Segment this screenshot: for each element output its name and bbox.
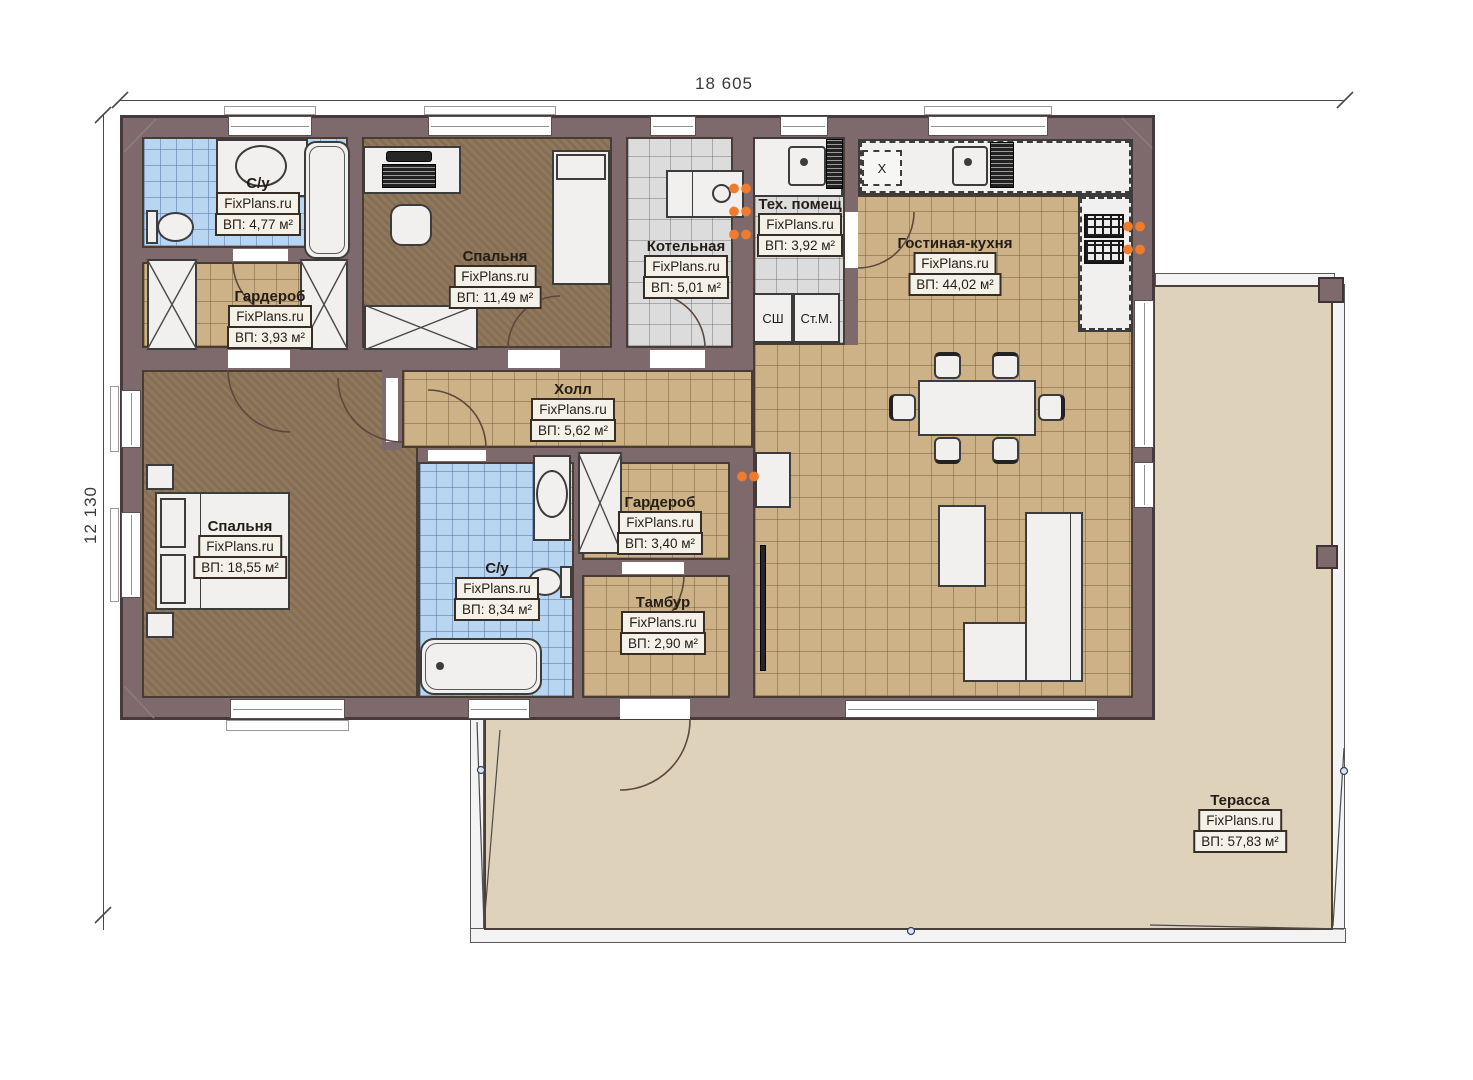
wardrobe-cabinet bbox=[364, 305, 478, 350]
dining-chair bbox=[992, 352, 1019, 379]
brand-box: FixPlans.ru bbox=[228, 305, 312, 328]
area-box: ВП: 5,01 м² bbox=[643, 276, 729, 299]
fridge-label: Х bbox=[878, 161, 887, 176]
window-left-bedroom2 bbox=[121, 512, 141, 598]
room-label-bedroom1: Спальня FixPlans.ru ВП: 11,49 м² bbox=[449, 248, 542, 309]
brand-box: FixPlans.ru bbox=[1198, 809, 1282, 832]
room-label-wardrobe1: Гардероб FixPlans.ru ВП: 3,93 м² bbox=[227, 288, 313, 349]
door-gap-hall-bath2 bbox=[428, 450, 486, 461]
terrace-floor-right bbox=[1155, 285, 1333, 722]
dining-chair bbox=[992, 437, 1019, 464]
room-label-bedroom2: Спальня FixPlans.ru ВП: 18,55 м² bbox=[193, 518, 287, 579]
boiler-divider bbox=[692, 170, 693, 218]
room-label-terrace: Терасса FixPlans.ru ВП: 57,83 м² bbox=[1193, 792, 1287, 853]
stove-burners-icon bbox=[1084, 240, 1124, 264]
door-gap-bath1-wardrobe1 bbox=[233, 249, 288, 261]
water-heater-icon bbox=[826, 139, 843, 189]
pillow bbox=[556, 154, 606, 180]
room-label-living: Гостиная-кухня FixPlans.ru ВП: 44,02 м² bbox=[898, 235, 1013, 296]
sink-icon bbox=[536, 470, 568, 518]
washer-box: Ст.М. bbox=[793, 293, 840, 343]
sink-icon bbox=[788, 146, 826, 186]
door-gap-hall-bedroom1 bbox=[508, 350, 560, 368]
room-label-hall: Холл FixPlans.ru ВП: 5,62 м² bbox=[530, 381, 616, 442]
window-right-dining bbox=[1134, 300, 1154, 448]
dimension-height-label: 12 130 bbox=[81, 486, 101, 544]
sofa-backrest-line bbox=[1070, 514, 1071, 680]
nightstand bbox=[146, 612, 174, 638]
window-bottom-bath2 bbox=[468, 699, 530, 719]
bathtub-inner bbox=[309, 146, 345, 254]
radiator-icon bbox=[728, 205, 752, 218]
stove-burners-icon bbox=[1084, 214, 1124, 238]
area-box: ВП: 3,93 м² bbox=[227, 326, 313, 349]
terrace-post-top-right bbox=[1318, 277, 1344, 303]
window-top-kitchen bbox=[928, 116, 1048, 136]
door-gap-wardrobe2-tambour bbox=[622, 562, 684, 574]
floor-plan-canvas: 18 605 12 130 bbox=[0, 0, 1473, 1080]
faucet-dot bbox=[800, 158, 808, 166]
terrace-railing-left bbox=[470, 718, 484, 930]
door-gap-hall-bedroom2 bbox=[386, 378, 398, 442]
dining-chair bbox=[934, 437, 961, 464]
printer-icon bbox=[382, 164, 436, 188]
dining-chair bbox=[1038, 394, 1065, 421]
wardrobe-cabinet bbox=[147, 259, 197, 350]
brand-box: FixPlans.ru bbox=[758, 213, 842, 236]
brand-box: FixPlans.ru bbox=[453, 265, 537, 288]
dryer-box: СШ bbox=[753, 293, 793, 343]
chair bbox=[390, 204, 432, 246]
area-box: ВП: 2,90 м² bbox=[620, 632, 706, 655]
dryer-label: СШ bbox=[762, 311, 783, 326]
room-label-tambour: Тамбур FixPlans.ru ВП: 2,90 м² bbox=[620, 594, 706, 655]
room-label-wardrobe2: Гардероб FixPlans.ru ВП: 3,40 м² bbox=[617, 494, 703, 555]
room-label-bath2: С/у FixPlans.ru ВП: 8,34 м² bbox=[454, 560, 540, 621]
radiator-icon bbox=[1122, 220, 1146, 233]
terrace-post-right-mid bbox=[1316, 545, 1338, 569]
nightstand bbox=[146, 464, 174, 490]
brand-box: FixPlans.ru bbox=[913, 252, 997, 275]
area-box: ВП: 5,62 м² bbox=[530, 419, 616, 442]
drain-dot bbox=[436, 662, 444, 670]
faucet-dot bbox=[964, 158, 972, 166]
door-gap-tech-living bbox=[845, 212, 858, 268]
area-box: ВП: 57,83 м² bbox=[1193, 830, 1287, 853]
tv-console bbox=[755, 452, 791, 508]
wardrobe-cabinet bbox=[578, 452, 622, 554]
dimension-line-top bbox=[120, 100, 1345, 101]
dining-chair bbox=[934, 352, 961, 379]
brand-box: FixPlans.ru bbox=[644, 255, 728, 278]
room-label-bath1: С/у FixPlans.ru ВП: 4,77 м² bbox=[215, 175, 301, 236]
door-gap-hall-boiler bbox=[650, 350, 705, 368]
door-gap-wardrobe1-bedroom2 bbox=[228, 350, 290, 368]
radiator-icon bbox=[728, 228, 752, 241]
area-box: ВП: 3,92 м² bbox=[757, 234, 843, 257]
brand-box: FixPlans.ru bbox=[618, 511, 702, 534]
window-top-boiler bbox=[650, 116, 696, 136]
room-label-boiler: Котельная FixPlans.ru ВП: 5,01 м² bbox=[643, 238, 729, 299]
sliding-door-living-terrace bbox=[845, 700, 1098, 718]
window-sill bbox=[226, 720, 349, 731]
terrace-railing-right bbox=[1332, 284, 1345, 943]
window-top-bedroom1 bbox=[428, 116, 552, 136]
radiator-icon bbox=[1122, 243, 1146, 256]
window-bottom-bedroom2 bbox=[230, 699, 345, 719]
toilet-icon bbox=[157, 212, 194, 242]
area-box: ВП: 18,55 м² bbox=[193, 556, 287, 579]
terrace-railing-bottom bbox=[470, 928, 1346, 943]
area-box: ВП: 44,02 м² bbox=[908, 273, 1002, 296]
sink-icon bbox=[952, 146, 988, 186]
window-top-tech bbox=[780, 116, 828, 136]
brand-box: FixPlans.ru bbox=[531, 398, 615, 421]
dining-table bbox=[918, 380, 1036, 436]
window-sill bbox=[110, 386, 119, 452]
oven-icon bbox=[990, 142, 1014, 188]
sofa-chaise-section bbox=[963, 622, 1027, 682]
sofa-vertical-section bbox=[1025, 512, 1083, 682]
pillow bbox=[160, 498, 186, 548]
window-sill bbox=[424, 106, 556, 115]
window-top-bath1 bbox=[228, 116, 312, 136]
area-box: ВП: 4,77 м² bbox=[215, 213, 301, 236]
window-left-upper bbox=[121, 390, 141, 448]
area-box: ВП: 3,40 м² bbox=[617, 532, 703, 555]
laptop-icon bbox=[386, 151, 432, 162]
dining-chair bbox=[889, 394, 916, 421]
brand-box: FixPlans.ru bbox=[455, 577, 539, 600]
window-sill bbox=[924, 106, 1052, 115]
entrance-door-gap-tambour bbox=[620, 699, 690, 719]
brand-box: FixPlans.ru bbox=[216, 192, 300, 215]
window-right-living bbox=[1134, 462, 1154, 508]
window-sill bbox=[224, 106, 316, 115]
window-sill bbox=[110, 508, 119, 602]
radiator-icon bbox=[728, 182, 752, 195]
fridge-box: Х bbox=[862, 150, 902, 186]
coffee-table bbox=[938, 505, 986, 587]
washer-label: Ст.М. bbox=[801, 311, 833, 326]
area-box: ВП: 11,49 м² bbox=[449, 286, 542, 309]
radiator-icon bbox=[736, 470, 760, 483]
brand-box: FixPlans.ru bbox=[198, 535, 282, 558]
brand-box: FixPlans.ru bbox=[621, 611, 705, 634]
area-box: ВП: 8,34 м² bbox=[454, 598, 540, 621]
room-label-tech: Тех. помещ FixPlans.ru ВП: 3,92 м² bbox=[757, 196, 843, 257]
pillow bbox=[160, 554, 186, 604]
tv-icon bbox=[760, 545, 766, 671]
dimension-width-label: 18 605 bbox=[695, 74, 753, 94]
dimension-line-left bbox=[103, 115, 104, 930]
